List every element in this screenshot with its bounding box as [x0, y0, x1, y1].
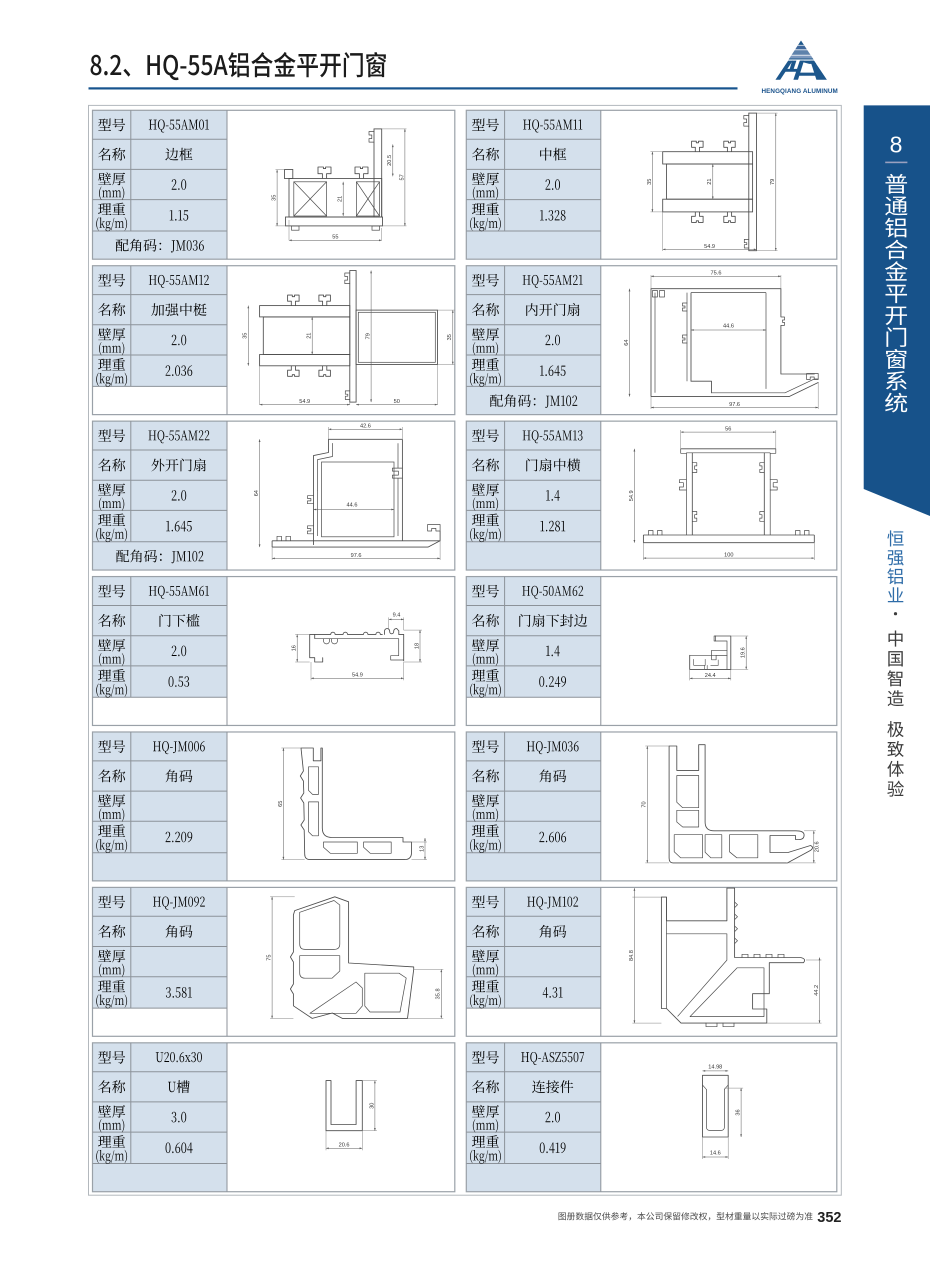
svg-text:35: 35 [647, 179, 653, 185]
svg-text:70: 70 [642, 801, 648, 807]
svg-text:64: 64 [254, 490, 260, 496]
svg-text:14.98: 14.98 [708, 1065, 722, 1071]
svg-text:21: 21 [307, 333, 313, 339]
svg-text:75: 75 [267, 954, 273, 960]
svg-text:79: 79 [366, 333, 372, 339]
svg-text:18: 18 [414, 643, 420, 649]
svg-text:44.6: 44.6 [723, 323, 734, 329]
svg-text:24.4: 24.4 [705, 673, 716, 679]
svg-text:44.2: 44.2 [814, 985, 820, 996]
svg-text:19.6: 19.6 [741, 647, 747, 658]
svg-text:54.9: 54.9 [704, 244, 715, 250]
svg-text:54.9: 54.9 [629, 490, 635, 501]
svg-text:56: 56 [725, 427, 731, 433]
svg-text:13: 13 [419, 846, 425, 852]
svg-text:20.6: 20.6 [815, 841, 821, 852]
svg-text:9.4: 9.4 [393, 612, 401, 618]
svg-text:75.6: 75.6 [711, 271, 722, 277]
svg-text:HENGQIANG ALUMINUM: HENGQIANG ALUMINUM [761, 88, 837, 95]
svg-text:352: 352 [817, 1210, 841, 1226]
svg-text:84.8: 84.8 [629, 950, 635, 961]
svg-text:20.6: 20.6 [339, 1143, 350, 1149]
svg-text:64: 64 [624, 339, 630, 345]
svg-text:16: 16 [292, 645, 298, 651]
svg-text:21: 21 [338, 196, 344, 202]
svg-text:54.9: 54.9 [299, 399, 310, 405]
svg-text:54.9: 54.9 [352, 673, 363, 679]
svg-text:100: 100 [724, 553, 733, 559]
svg-text:44.6: 44.6 [347, 503, 358, 509]
svg-text:35.8: 35.8 [436, 988, 442, 999]
svg-text:65: 65 [278, 801, 284, 807]
svg-text:36: 36 [736, 1109, 742, 1115]
svg-text:30: 30 [369, 1103, 375, 1109]
svg-text:57: 57 [399, 174, 405, 180]
svg-text:35: 35 [243, 333, 249, 339]
svg-text:97.6: 97.6 [729, 402, 740, 408]
svg-text:35: 35 [272, 195, 278, 201]
svg-text:35: 35 [447, 334, 453, 340]
svg-text:97.6: 97.6 [351, 553, 362, 559]
svg-text:55: 55 [332, 235, 338, 241]
svg-text:42.6: 42.6 [360, 424, 371, 430]
svg-text:79: 79 [770, 179, 776, 185]
svg-text:20.5: 20.5 [387, 155, 393, 166]
svg-text:8: 8 [890, 132, 903, 158]
svg-text:21: 21 [707, 178, 713, 184]
svg-text:50: 50 [394, 399, 400, 405]
svg-text:14.6: 14.6 [710, 1151, 721, 1157]
